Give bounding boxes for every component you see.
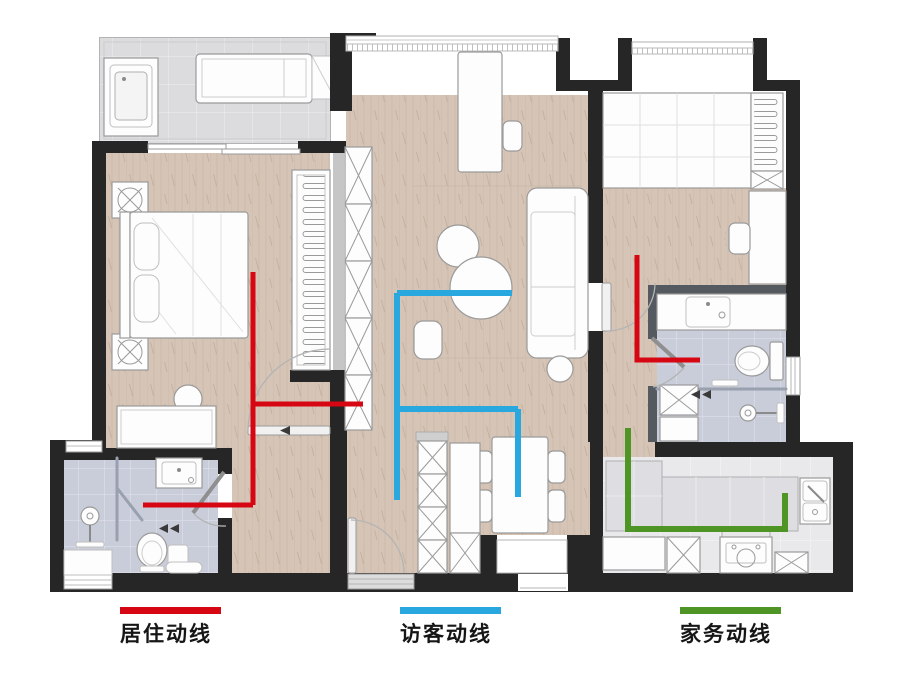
bathroom2-cabinet xyxy=(660,385,698,441)
kitchen-x-cabinet-left xyxy=(667,537,700,573)
shoe-cabinet xyxy=(416,432,448,573)
floor-cushion xyxy=(414,321,442,359)
floor-drain xyxy=(712,380,738,386)
bedroom2-desk xyxy=(749,191,786,284)
legend-label-visitor: 访客动线 xyxy=(400,623,492,646)
bedroom2-window xyxy=(632,42,753,48)
housework-route-swatch xyxy=(680,607,781,614)
master-wardrobe xyxy=(292,170,330,370)
desk-chair xyxy=(503,121,522,151)
entry-cabinet xyxy=(450,443,480,573)
bathroom1-window xyxy=(64,575,112,589)
storage-column xyxy=(345,147,372,430)
balcony-sink-basin xyxy=(115,72,147,120)
legend-item-visitor: 访客动线 xyxy=(400,607,501,646)
shower-ledge xyxy=(64,550,112,575)
sofa xyxy=(527,188,588,358)
pillow xyxy=(134,223,159,270)
living-curtain-band xyxy=(346,44,558,51)
side-stool xyxy=(547,356,573,382)
kitchen-sink xyxy=(800,478,830,524)
coffee-table-large xyxy=(450,257,512,319)
cabinet-back-wall xyxy=(333,153,344,370)
nightstand-bottom xyxy=(112,334,148,370)
hanger-rack xyxy=(751,93,783,189)
floor-plan xyxy=(0,0,900,675)
balcony xyxy=(100,38,336,144)
kitchen-x-cabinet-right xyxy=(775,552,808,573)
bathroom1-sink xyxy=(156,458,202,488)
bathroom2-vanity xyxy=(657,294,786,330)
bath-mat xyxy=(166,562,202,573)
work-desk xyxy=(458,52,502,172)
legend-item-housework: 家务动线 xyxy=(680,607,781,646)
dining-chair xyxy=(548,490,565,522)
hallway-floor xyxy=(232,450,330,573)
balcony-slider-panel1 xyxy=(148,144,226,149)
entry-niche xyxy=(497,540,567,573)
bedroom-desk xyxy=(117,406,216,448)
visitor-route-swatch xyxy=(400,607,501,614)
bedroom2-wardrobe xyxy=(603,93,751,188)
bedroom2-chair xyxy=(729,223,750,254)
legend-label-living: 居住动线 xyxy=(120,623,212,646)
legend-item-living: 居住动线 xyxy=(120,607,221,646)
balcony-daybed xyxy=(196,54,312,103)
legend-label-housework: 家务动线 xyxy=(680,623,772,646)
bedroom2-curtain-band xyxy=(632,48,753,54)
bathroom2-window xyxy=(786,357,800,395)
pillow xyxy=(134,275,159,322)
floorplan-canvas: 居住动线 访客动线 家务动线 xyxy=(0,0,900,675)
entry-threshold xyxy=(348,574,414,589)
toilet-1 xyxy=(137,533,167,572)
balcony-slider-panel2 xyxy=(222,149,300,154)
kitchen-base-cabinet xyxy=(603,537,665,570)
stove xyxy=(720,531,772,573)
dining-chair xyxy=(548,451,565,483)
double-bed xyxy=(120,212,248,338)
living-route-swatch xyxy=(120,607,221,614)
